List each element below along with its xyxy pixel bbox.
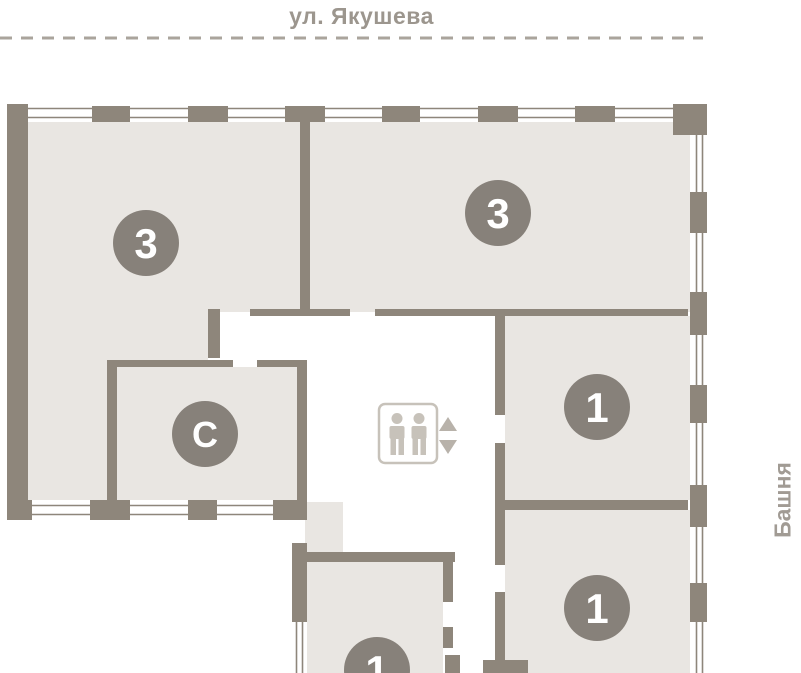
wall [690, 583, 707, 622]
wall [7, 500, 32, 520]
wall [495, 500, 688, 510]
wall [495, 510, 505, 565]
wall [7, 104, 28, 520]
wall [208, 309, 220, 358]
room-badge-1-right-middle[interactable]: 1 [564, 374, 630, 440]
room-badge-studio[interactable]: С [172, 401, 238, 467]
wall [575, 106, 615, 122]
room-area-3-left-lower[interactable] [28, 309, 208, 360]
wall [495, 592, 505, 662]
wall [445, 655, 460, 673]
wall [92, 106, 130, 122]
wall [285, 106, 325, 122]
wall [90, 500, 130, 520]
wall [107, 360, 233, 367]
room-badge-label: С [192, 414, 218, 455]
room-badge-1-right-bottom[interactable]: 1 [564, 575, 630, 641]
wall [478, 106, 518, 122]
wall [495, 316, 505, 415]
wall [443, 627, 453, 648]
wall [375, 309, 688, 316]
room-badge-3-right[interactable]: 3 [465, 180, 531, 246]
room-badge-label: 3 [486, 190, 509, 237]
wall [250, 309, 350, 316]
wall [382, 106, 420, 122]
room-area-1-bottom-connector[interactable] [305, 502, 343, 554]
wall [495, 443, 505, 500]
wall [690, 485, 707, 527]
wall [690, 385, 707, 423]
wall [297, 360, 307, 505]
room-badge-label: 3 [134, 220, 157, 267]
wall [673, 104, 707, 135]
wall [188, 106, 228, 122]
wall [690, 292, 707, 335]
room-area-3-left-strip[interactable] [28, 360, 107, 500]
room-badge-3-left[interactable]: 3 [113, 210, 179, 276]
arrow-up-icon [439, 417, 457, 431]
room-badge-label: 1 [585, 384, 608, 431]
floorplan-page: ул. Якушева Башня [0, 0, 801, 673]
elevator-people-icon [379, 404, 457, 463]
wall [292, 543, 307, 622]
wall [443, 552, 453, 602]
floor-plan: 3 3 С 1 1 1 [0, 0, 801, 673]
wall [107, 367, 117, 500]
wall [483, 660, 528, 673]
wall [300, 122, 310, 309]
elevator-box [379, 404, 437, 463]
room-badge-label: 1 [365, 647, 388, 673]
wall [690, 192, 707, 233]
arrow-down-icon [439, 440, 457, 454]
wall [292, 552, 455, 562]
room-badge-label: 1 [585, 585, 608, 632]
wall [188, 500, 217, 520]
